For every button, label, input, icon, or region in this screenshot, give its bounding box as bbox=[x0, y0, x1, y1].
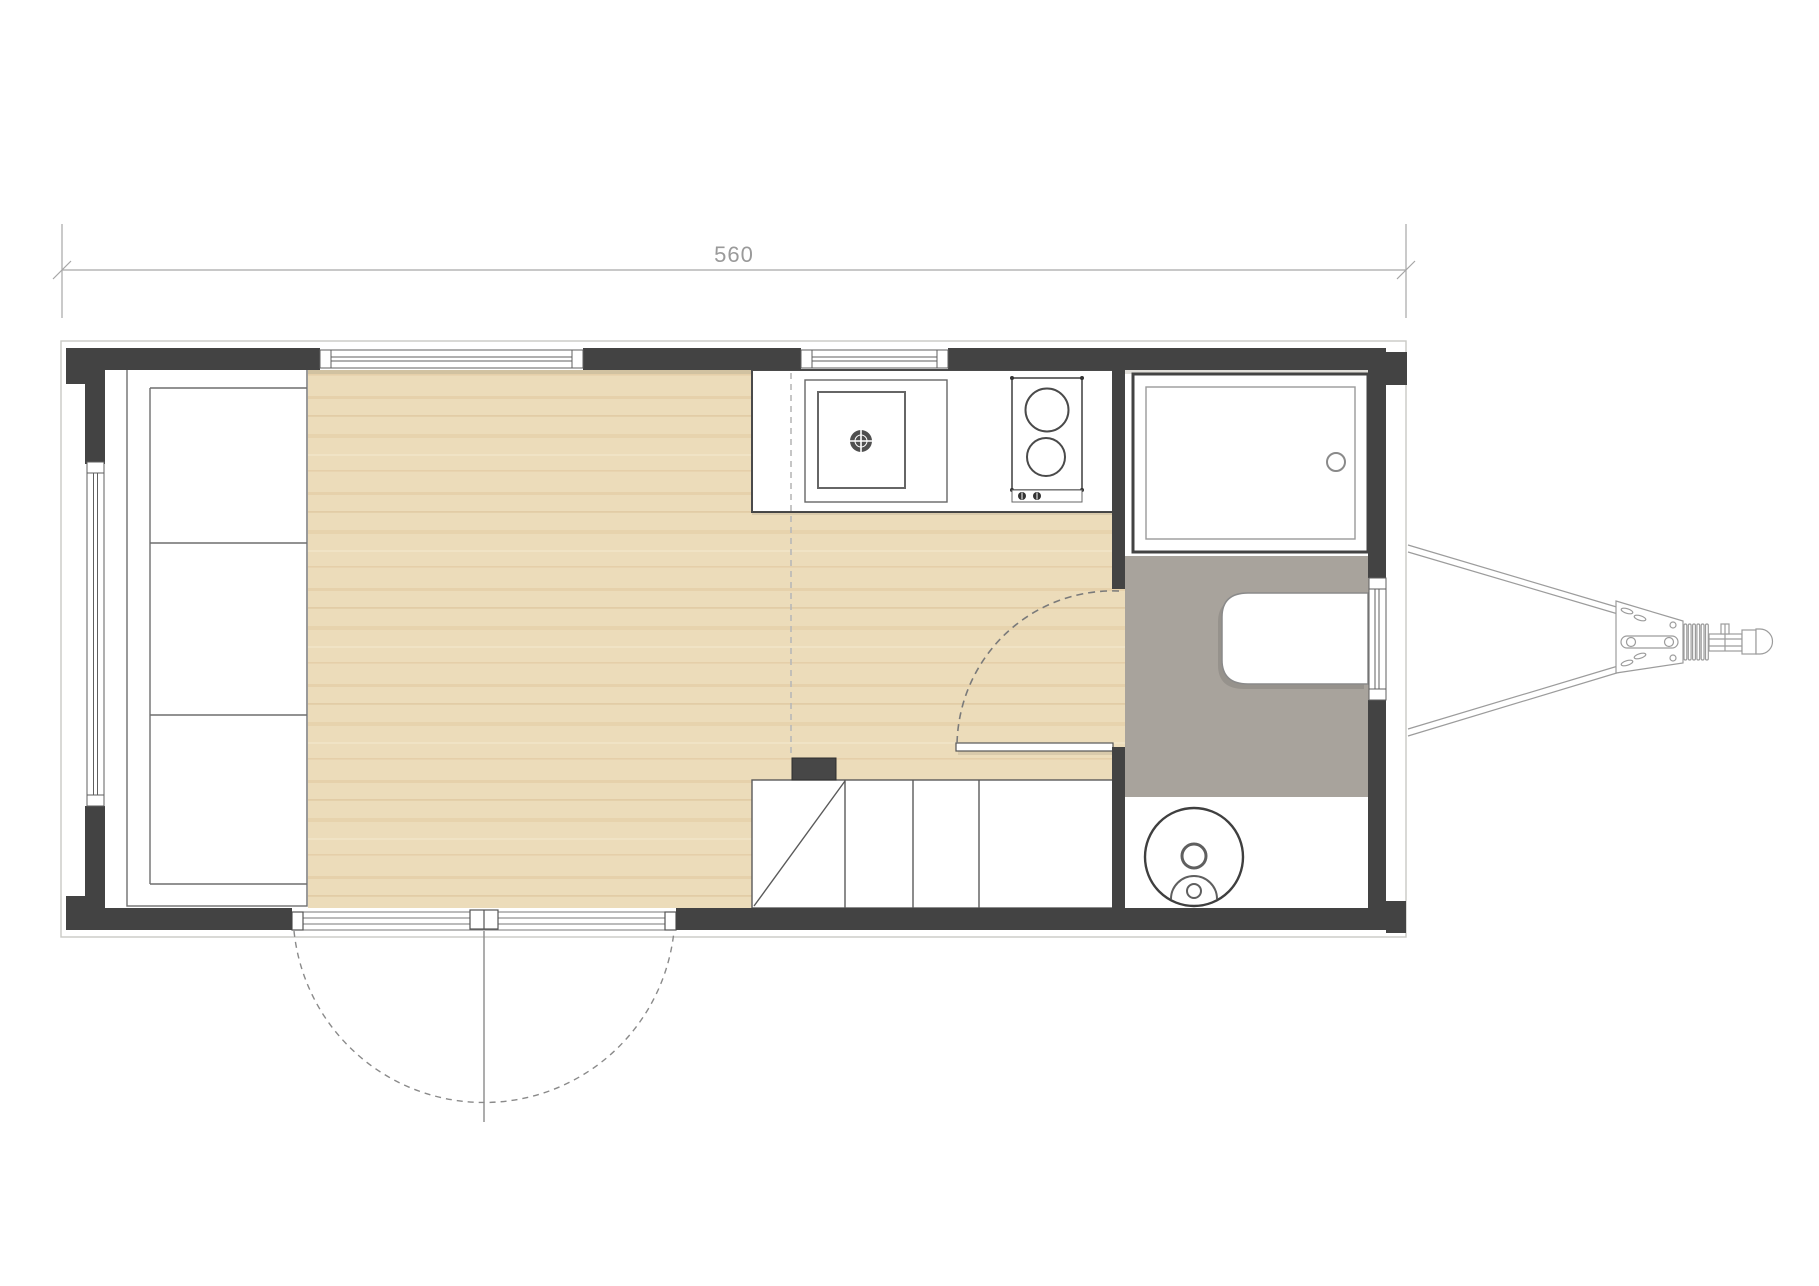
hitch-a-frame bbox=[1408, 545, 1620, 736]
sofa-bed bbox=[127, 362, 307, 906]
stairs bbox=[752, 780, 1113, 908]
composting-toilet bbox=[1145, 808, 1243, 906]
wall-corner-top-left bbox=[66, 348, 85, 384]
hitch-latch-box bbox=[1742, 630, 1756, 654]
wall-top-2 bbox=[583, 348, 801, 370]
burner-large bbox=[1026, 389, 1069, 432]
stair-step-box bbox=[792, 758, 836, 780]
stairs-outline bbox=[752, 780, 1113, 908]
trailer-hitch bbox=[1408, 545, 1773, 736]
sofa-outline bbox=[127, 362, 307, 906]
wall-bottom-1 bbox=[66, 908, 292, 930]
floor-plan-page: 560 bbox=[0, 0, 1819, 1286]
kitchen-sink bbox=[805, 380, 947, 502]
hitch-bellows bbox=[1684, 624, 1708, 660]
entry-door-jamb-left bbox=[292, 912, 303, 930]
toilet-front-ring bbox=[1187, 884, 1201, 898]
dimension-label: 560 bbox=[714, 242, 754, 267]
top-left-window bbox=[320, 350, 583, 368]
wall-top-3 bbox=[948, 348, 1386, 370]
burner-small bbox=[1027, 438, 1065, 476]
kitchen-counter bbox=[752, 370, 1113, 515]
toilet-center-ring bbox=[1182, 844, 1206, 868]
wall-left-upper bbox=[85, 348, 105, 464]
wall-partition-upper bbox=[1112, 370, 1125, 589]
left-wall-window bbox=[87, 462, 104, 806]
wall-right-upper bbox=[1368, 348, 1386, 578]
floor-plan-drawing: 560 bbox=[0, 0, 1819, 1286]
cooktop-2-burner bbox=[1010, 376, 1084, 502]
wall-corner-bottom-right bbox=[1386, 901, 1406, 933]
shower bbox=[1133, 374, 1368, 552]
wall-partition-lower bbox=[1112, 747, 1125, 913]
right-wall-window bbox=[1369, 578, 1386, 700]
sink-drain-icon bbox=[850, 430, 872, 452]
bathroom-door-leaf bbox=[956, 743, 1113, 751]
wall-bottom-2 bbox=[676, 908, 1371, 930]
top-kitchen-window bbox=[801, 350, 948, 368]
shower-drain-icon bbox=[1327, 453, 1345, 471]
vanity-top bbox=[1222, 593, 1368, 684]
wall-right-lower bbox=[1368, 700, 1386, 930]
counter-shadow bbox=[752, 512, 1113, 515]
entry-door-jamb-right bbox=[665, 912, 676, 930]
wall-corner-top-right bbox=[1386, 352, 1407, 385]
entry-double-door bbox=[292, 910, 676, 1122]
vanity bbox=[1218, 593, 1368, 689]
hitch-coupler-nose bbox=[1756, 629, 1773, 654]
dimension-line bbox=[53, 224, 1415, 318]
